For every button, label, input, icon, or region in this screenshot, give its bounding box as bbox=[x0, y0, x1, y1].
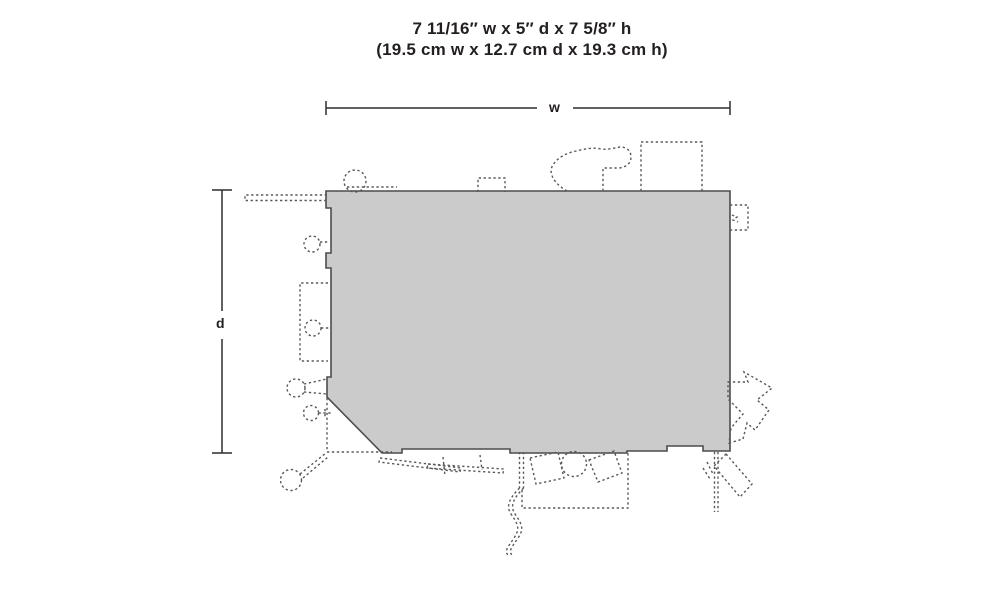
dimensions-metric: (19.5 cm w x 12.7 cm d x 19.3 cm h) bbox=[272, 39, 772, 60]
fallen-board-2 bbox=[427, 464, 504, 473]
post-brace-1 bbox=[304, 379, 327, 384]
junk-pile-top bbox=[551, 147, 631, 191]
valve-left-lower bbox=[304, 406, 319, 421]
dimensions-title: 7 11/16″ w x 5″ d x 7 5/8″ h (19.5 cm w … bbox=[272, 18, 772, 60]
dimensions-imperial: 7 11/16″ w x 5″ d x 7 5/8″ h bbox=[272, 18, 772, 39]
board-stack-left bbox=[245, 195, 327, 201]
width-dimension-label: w bbox=[549, 99, 560, 115]
lamp-post-pole-1 bbox=[300, 453, 326, 474]
footprint-diagram: 7 11/16″ w x 5″ d x 7 5/8″ h (19.5 cm w … bbox=[0, 0, 1000, 591]
diagram-canvas bbox=[0, 0, 1000, 591]
meter-box-detail bbox=[732, 215, 738, 222]
barrel-left-upper bbox=[304, 236, 320, 252]
crate-bottom-2 bbox=[589, 451, 622, 482]
arrow-sign-right bbox=[728, 372, 772, 443]
barrel-left-mid bbox=[305, 320, 321, 336]
barrel-bottom bbox=[562, 452, 587, 477]
lamp-post-pole-2 bbox=[303, 457, 328, 478]
depth-dimension-label: d bbox=[216, 315, 225, 331]
meter-box-right bbox=[730, 205, 748, 230]
lamp-post-base bbox=[281, 470, 302, 491]
building-footprint bbox=[326, 191, 730, 453]
post-with-braces-left bbox=[287, 379, 305, 397]
loading-pad bbox=[522, 452, 628, 508]
hose-wave-2 bbox=[510, 488, 523, 555]
ramp-hatch-2 bbox=[703, 468, 710, 479]
small-box-top bbox=[478, 178, 505, 192]
round-vent-top bbox=[344, 170, 366, 192]
crate-bottom-1 bbox=[530, 452, 564, 484]
ramp-hatch-1 bbox=[707, 462, 713, 474]
ramp-bottom-right bbox=[714, 454, 752, 497]
post-brace-2 bbox=[304, 392, 327, 394]
large-box-top bbox=[641, 142, 702, 191]
rack-left bbox=[300, 283, 328, 361]
board-mark-2 bbox=[480, 455, 482, 470]
